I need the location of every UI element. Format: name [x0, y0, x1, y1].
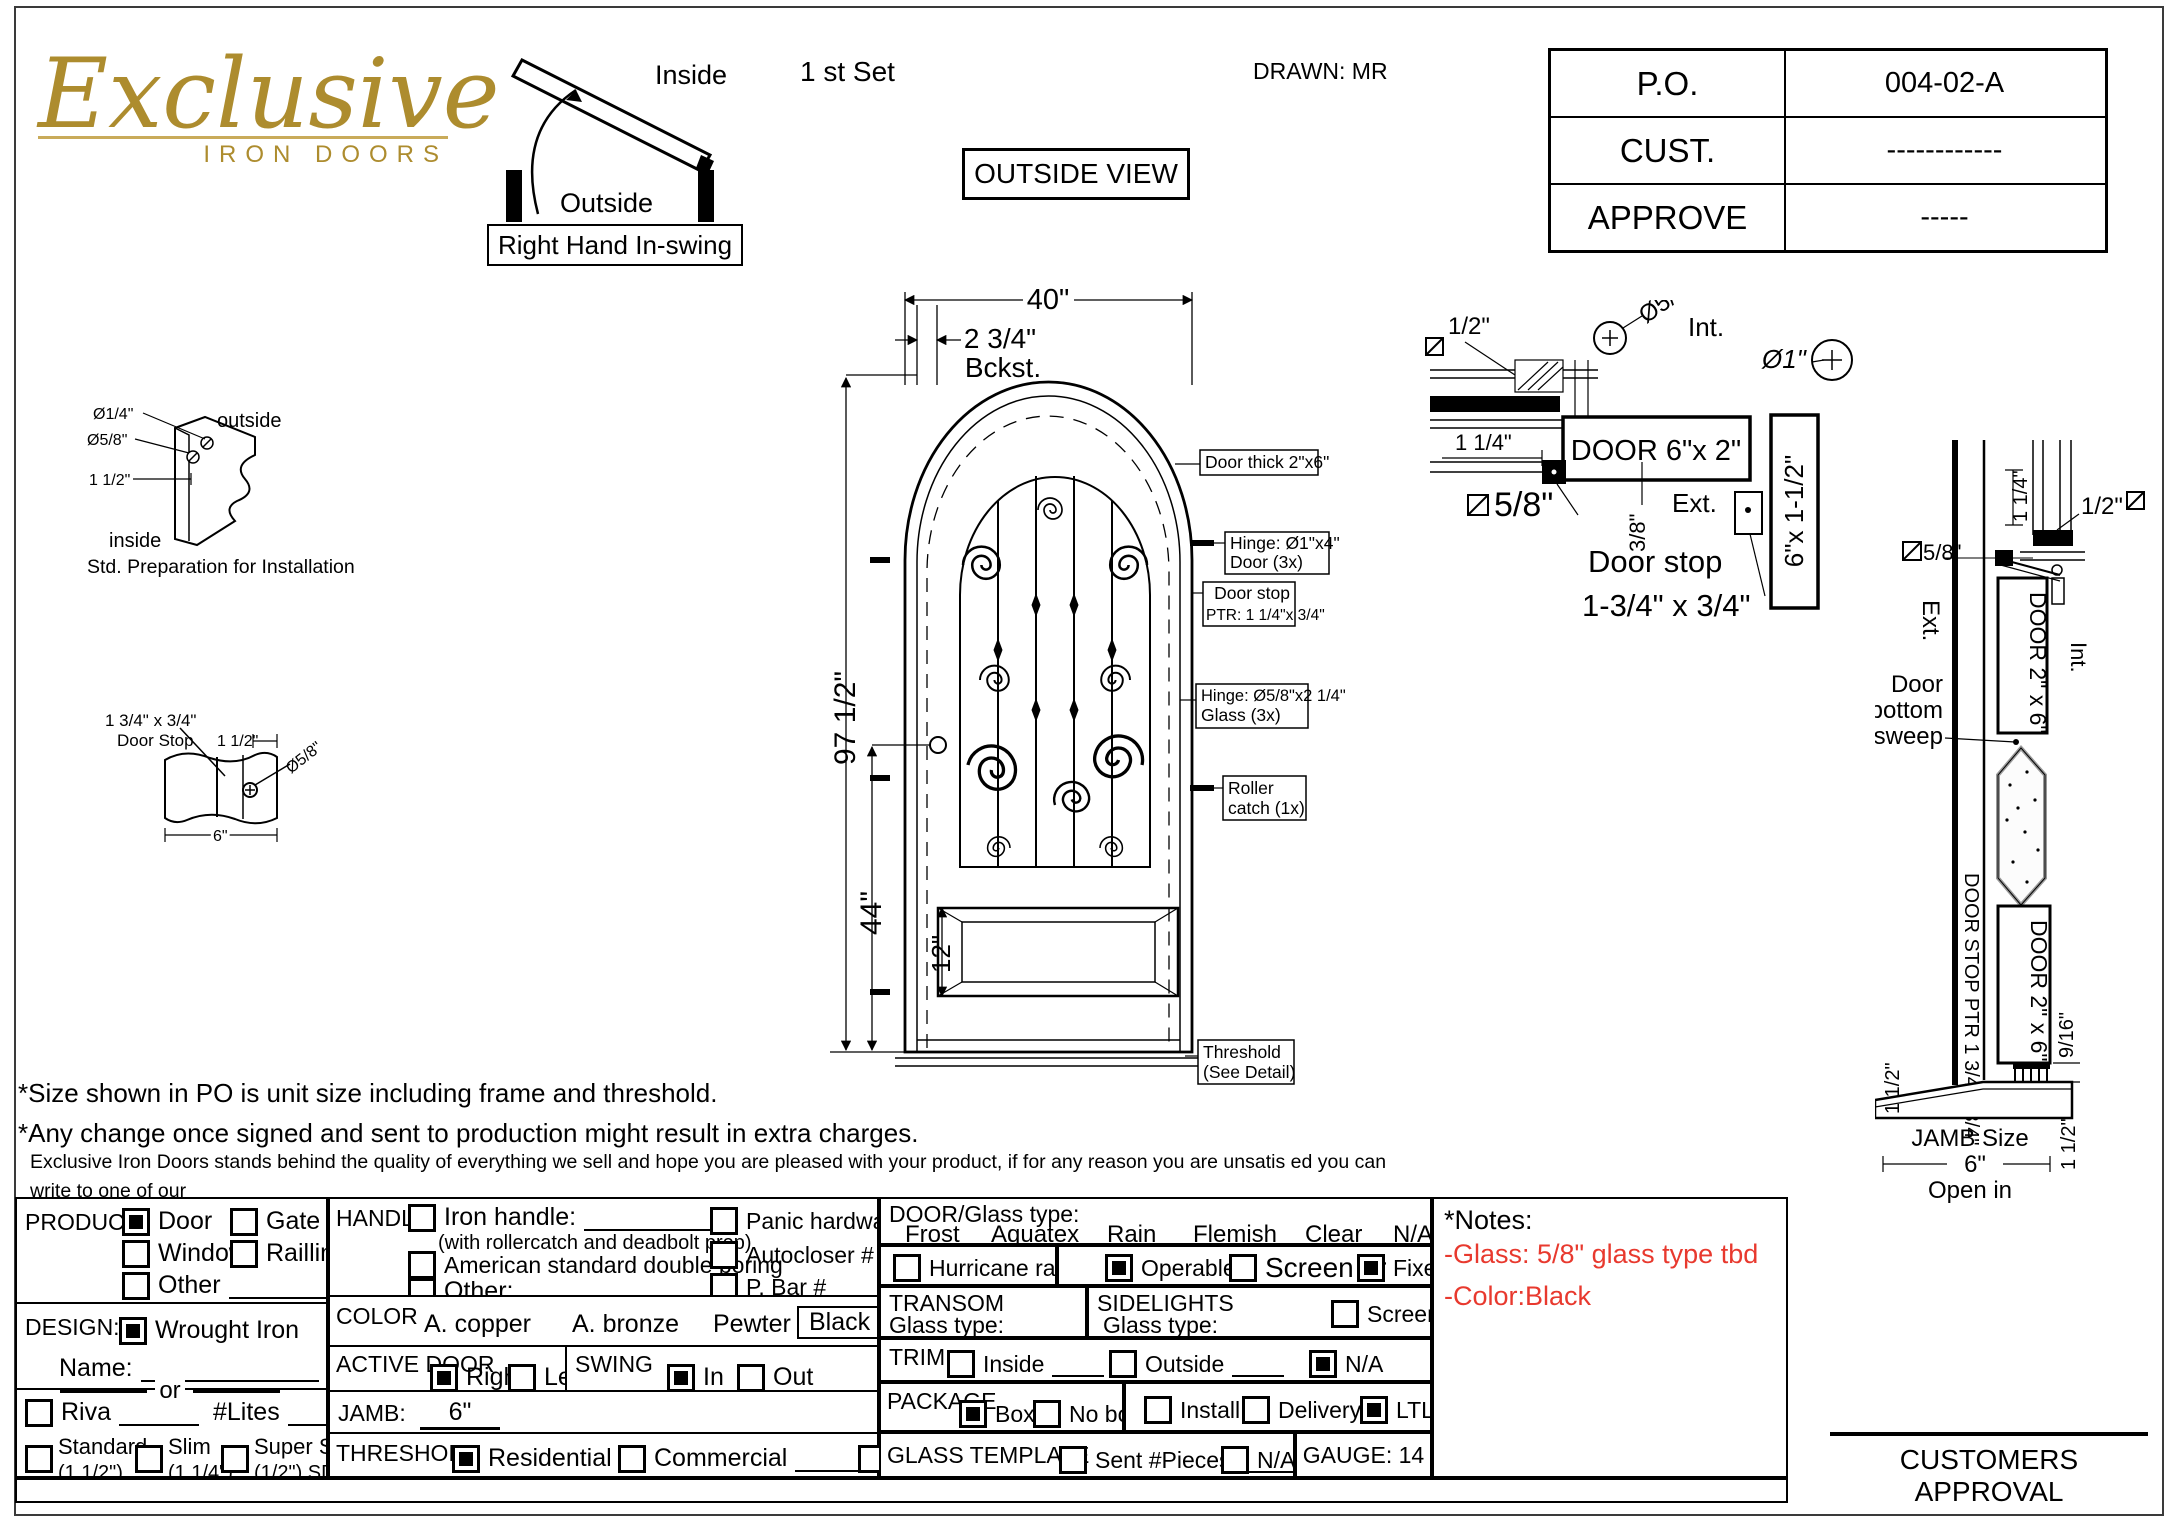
callout-threshold-1: Threshold — [1203, 1042, 1281, 1062]
ext-label: Ext. — [1672, 488, 1717, 518]
door-26-bottom-label: DOOR 2" x 6" — [2026, 920, 2052, 1062]
dia1-label: Ø1" — [1761, 344, 1808, 374]
operable-cell: Operable Screen or Fixed — [1057, 1245, 1432, 1286]
door-26-top-label: DOOR 2" x 6" — [2025, 592, 2051, 734]
delivery-checkbox[interactable] — [1242, 1396, 1270, 1424]
inside-label: Inside — [655, 60, 727, 90]
autocloser-checkbox[interactable] — [710, 1241, 738, 1269]
swing-caption-box: Right Hand In-swing — [487, 224, 743, 266]
door-stop-detail: 1 3/4" x 3/4" Door Stop 1 1/2" Ø5/8" 6" — [85, 700, 345, 860]
threshold-residential-option[interactable]: Residential — [452, 1444, 612, 1473]
dia-quarter-label: Ø1/4" — [93, 406, 133, 423]
trim-label: TRIM — [889, 1344, 945, 1371]
door-elevation: 40" 2 3/4" Bckst. 97 1/2" 44" 12" — [800, 260, 1370, 1100]
callout-roller-2: catch (1x) — [1228, 798, 1305, 818]
sill-half: 1/2" — [2081, 493, 2123, 520]
product-window-checkbox[interactable] — [122, 1240, 150, 1268]
gauge-value: GAUGE: 14 — [1303, 1442, 1424, 1469]
swing-label: SWING — [575, 1351, 653, 1378]
product-door-checkbox[interactable] — [122, 1208, 150, 1236]
active-right-checkbox[interactable] — [430, 1364, 458, 1392]
callout-stop-2: PTR: 1 1/4"x 3/4" — [1206, 607, 1325, 624]
outside-label: Outside — [560, 188, 653, 218]
color-copper-option[interactable]: A. copper — [424, 1310, 531, 1339]
sill-profile — [1875, 1082, 2072, 1118]
dim-backset: 2 3/4" Bckst. — [895, 305, 1041, 385]
swing-in-checkbox[interactable] — [667, 1364, 695, 1392]
std-prep-caption: Std. Preparation for Installation — [87, 556, 355, 579]
package-box-option[interactable]: Box — [959, 1400, 1035, 1428]
sidelights-glass-field[interactable]: Glass type: — [1103, 1312, 1302, 1339]
approve-value[interactable]: ----- — [1786, 185, 2103, 250]
handle-cell: HANDLE Iron handle: (with rollercatch an… — [328, 1197, 879, 1297]
panic-checkbox[interactable] — [710, 1207, 738, 1235]
swing-caption: Right Hand In-swing — [498, 230, 732, 261]
cust-row: CUST. ------------ — [1551, 118, 2105, 185]
product-window-option[interactable]: Window — [122, 1239, 247, 1268]
door-glass-cell: DOOR/Glass type: Frost Aquatex Rain Flem… — [879, 1197, 1432, 1245]
trim-outside-input[interactable] — [1232, 1351, 1284, 1377]
sweep-2: bottom — [1875, 697, 1943, 724]
callout-hinge-glass-2: Glass (3x) — [1201, 705, 1281, 725]
head-black-block — [2033, 530, 2073, 546]
sweep-1: Door — [1891, 671, 1943, 698]
hurricane-checkbox[interactable] — [893, 1254, 921, 1282]
customers-approval-label: CUSTOMERS APPROVAL — [1900, 1444, 2078, 1507]
outside-face-label: outside — [217, 410, 282, 432]
glass-template-na-option[interactable]: N/A — [1221, 1446, 1295, 1474]
order-note-color[interactable]: -Color:Black — [1444, 1281, 1591, 1312]
cust-value[interactable]: ------------ — [1786, 118, 2103, 183]
customers-approval[interactable]: CUSTOMERS APPROVAL — [1830, 1432, 2148, 1508]
active-door-cell: ACTIVE DOOR Right Left — [328, 1345, 567, 1392]
standard-checkbox[interactable] — [25, 1445, 53, 1473]
outside-view-box: OUTSIDE VIEW — [962, 148, 1190, 200]
operable-checkbox[interactable] — [1105, 1254, 1133, 1282]
trim-outside-option[interactable]: Outside — [1109, 1350, 1284, 1378]
dim-40-label: 40" — [1027, 284, 1070, 316]
jamb-size-label: JAMB Size — [1911, 1125, 2028, 1152]
jamb-6x15-label: 6"x 1-1/2" — [1779, 455, 1809, 567]
threshold-commercial-checkbox[interactable] — [618, 1445, 646, 1473]
note-size: *Size shown in PO is unit size including… — [18, 1078, 717, 1109]
dim-12-label: 12" — [926, 935, 956, 973]
product-gate-option[interactable]: Gate — [230, 1207, 320, 1236]
f58-label: 5/8" — [1494, 486, 1553, 524]
sent-pieces-checkbox[interactable] — [1059, 1446, 1087, 1474]
po-table: P.O. 004-02-A CUST. ------------ APPROVE… — [1548, 48, 2108, 253]
dim-975-label: 97 1/2" — [829, 671, 862, 765]
glass-strip — [1998, 748, 2045, 905]
install-option[interactable]: Install — [1144, 1396, 1240, 1424]
backset-word: Bckst. — [965, 352, 1041, 383]
logo: Exclusive IRON DOORS — [38, 46, 448, 169]
threshold-commercial-input[interactable] — [795, 1446, 861, 1472]
design-label: DESIGN: — [25, 1314, 120, 1341]
threshold-cell: THRESHOLD Residential Commercial N/A — [328, 1432, 879, 1478]
product-other-option[interactable]: Other — [122, 1271, 339, 1300]
dim-916-label: 9/16" — [2056, 1012, 2078, 1058]
color-cell: COLOR A. copper A. bronze Pewter Black S… — [328, 1295, 879, 1347]
latch-jamb — [698, 170, 714, 222]
standard-option[interactable]: Standard(1 1/2") — [25, 1434, 147, 1484]
stop-size-label: 1 3/4" x 3/4" — [105, 711, 196, 730]
package-delivery-cell: Install Delivery LTL — [1124, 1382, 1432, 1432]
callout-roller-1: Roller — [1228, 778, 1274, 798]
or-label: or — [155, 1377, 184, 1405]
sill-dim114: 1 1/4" — [2010, 470, 2032, 522]
jamb-plan-outline — [165, 753, 277, 823]
ltl-option[interactable]: LTL — [1360, 1396, 1434, 1424]
wall-black-band — [1430, 396, 1560, 412]
color-pewter-option[interactable]: Pewter — [713, 1310, 791, 1339]
threshold-commercial-option[interactable]: Commercial — [618, 1444, 861, 1473]
stop-dim-label: 1 1/2" — [217, 733, 258, 750]
inside-face-label: inside — [109, 530, 161, 552]
sill-ext: Ext. — [1917, 600, 1944, 641]
approve-row: APPROVE ----- — [1551, 185, 2105, 250]
color-label: COLOR — [336, 1303, 418, 1330]
sidelights-glass-input[interactable] — [1226, 1313, 1302, 1339]
product-gate-checkbox[interactable] — [230, 1208, 258, 1236]
riva-checkbox[interactable] — [25, 1399, 53, 1427]
dim-backset-label: 2 3/4" — [964, 323, 1036, 354]
operable-option[interactable]: Operable — [1105, 1254, 1236, 1282]
callout-thick: Door thick 2"x6" — [1205, 452, 1329, 472]
callout-stop-1: Door stop — [1214, 583, 1290, 603]
order-notes-cell: *Notes: -Glass: 5/8" glass type tbd -Col… — [1432, 1197, 1788, 1478]
outside-view-label: OUTSIDE VIEW — [974, 158, 1178, 190]
one-half-label: 1 1/2" — [89, 472, 130, 489]
sidelights-screen-option[interactable]: Screen — [1331, 1300, 1440, 1328]
super-slim-checkbox[interactable] — [221, 1445, 249, 1473]
swing-in-option[interactable]: In — [667, 1363, 724, 1392]
trim-na-option[interactable]: N/A — [1309, 1350, 1383, 1378]
stop-name-label: Door Stop — [117, 731, 194, 750]
order-notes-title: *Notes: — [1444, 1205, 1533, 1236]
trim-inside-option[interactable]: Inside — [947, 1350, 1104, 1378]
po-label: P.O. — [1551, 51, 1786, 116]
form-footer-band — [15, 1478, 1788, 1503]
head-section-detail: 1/2" Ø5/8" Int. Ø1" DOOR 6"x 2" 6"x 1-1/… — [1420, 300, 1870, 640]
dia-fiveeighth-label: Ø5/8" — [87, 432, 127, 449]
panic-option[interactable]: Panic hardware — [710, 1207, 906, 1235]
swing-out-option[interactable]: Out — [737, 1363, 813, 1392]
package-nobox-checkbox[interactable] — [1033, 1400, 1061, 1428]
american-boring-checkbox[interactable] — [408, 1251, 436, 1279]
sidelights-cell: SIDELIGHTS Glass type: Screen — [1087, 1286, 1432, 1338]
fixed-checkbox[interactable] — [1357, 1254, 1385, 1282]
wall-line — [1952, 440, 1958, 1085]
screen-or-checkbox[interactable] — [1229, 1254, 1257, 1282]
approve-label: APPROVE — [1551, 185, 1786, 250]
product-other-checkbox[interactable] — [122, 1272, 150, 1300]
stop-width-label: 6" — [213, 828, 228, 845]
order-sheet: Exclusive IRON DOORS Inside Outside Righ… — [0, 0, 2176, 1522]
trim-inside-input[interactable] — [1052, 1351, 1104, 1377]
transom-cell: TRANSOM Glass type: — [879, 1286, 1087, 1338]
package-box-checkbox[interactable] — [959, 1400, 987, 1428]
slim-option[interactable]: Slim(1 1/4") — [135, 1434, 233, 1484]
callout-hinge-door-1: Hinge: Ø1"x4" — [1230, 533, 1340, 553]
delivery-option[interactable]: Delivery — [1242, 1396, 1361, 1424]
callout-hinge-glass-1: Hinge: Ø5/8"x2 1/4" — [1201, 687, 1346, 705]
swing-cell: SWING In Out — [565, 1345, 879, 1392]
gauge-cell: GAUGE: 14 — [1295, 1432, 1432, 1478]
product-door-option[interactable]: Door — [122, 1207, 212, 1236]
callout-threshold-2: (See Detail) — [1203, 1062, 1295, 1082]
open-in-label: Open in — [1928, 1177, 2012, 1204]
lites-input[interactable] — [288, 1400, 326, 1426]
color-bronze-option[interactable]: A. bronze — [572, 1310, 679, 1339]
package-cell: PACKAGE Box No box — [879, 1382, 1124, 1432]
hurricane-cell: Hurricane rated — [879, 1245, 1057, 1286]
drawn-label: DRAWN: MR — [1253, 58, 1388, 85]
swing-out-checkbox[interactable] — [737, 1364, 765, 1392]
po-row: P.O. 004-02-A — [1551, 51, 2105, 118]
doorstop-word: Door stop — [1588, 544, 1722, 579]
stop-dia-label: Ø5/8" — [283, 739, 325, 777]
swing-diagram: Inside Outside — [470, 52, 760, 224]
trim-outside-checkbox[interactable] — [1109, 1350, 1137, 1378]
hinge-jamb — [506, 170, 522, 222]
transom-glass-field[interactable]: Glass type: — [889, 1312, 1090, 1339]
dim-112-right: 1 1/2" — [2058, 1118, 2080, 1170]
std-prep-detail: Ø1/4" Ø5/8" 1 1/2" outside inside — [85, 395, 325, 560]
dim-114-label: 1 1/4" — [1455, 430, 1512, 455]
glass-template-na-checkbox[interactable] — [1221, 1446, 1249, 1474]
color-black-option-selected[interactable]: Black — [797, 1306, 882, 1339]
callout-hinge-door-2: Door (3x) — [1230, 552, 1303, 572]
threshold-residential-checkbox[interactable] — [452, 1445, 480, 1473]
corbel-outline — [175, 417, 255, 545]
design-wrought-option[interactable]: Wrought Iron — [119, 1316, 299, 1345]
dim-40: 40" — [905, 284, 1192, 385]
jamb-cell: JAMB: 6" — [328, 1390, 879, 1434]
iron-handle-checkbox[interactable] — [408, 1204, 436, 1232]
trim-cell: TRIM Inside Outside N/A — [879, 1338, 1432, 1382]
design-wrought-checkbox[interactable] — [119, 1317, 147, 1345]
jamb-size-value: 6" — [1964, 1151, 1986, 1178]
door-stop-block — [1735, 492, 1762, 534]
iron-handle-option[interactable]: Iron handle: — [408, 1203, 732, 1232]
doorstop-size: 1-3/4" x 3/4" — [1582, 588, 1751, 623]
sill-section-detail: 1 1/4" 1/2" 5/8" DOOR 2" x 6" Int. Ext. … — [1875, 430, 2175, 1205]
dim-44-label: 44" — [855, 891, 888, 935]
logo-name: Exclusive — [38, 46, 448, 142]
int-label: Int. — [1688, 312, 1724, 342]
half-inch-label: 1/2" — [1448, 313, 1490, 340]
note-change: *Any change once signed and sent to prod… — [18, 1118, 918, 1149]
product-other-input[interactable] — [229, 1273, 339, 1299]
sidelights-screen-checkbox[interactable] — [1331, 1300, 1359, 1328]
glass-template-cell: GLASS TEMPLATE Sent #Pieces N/A — [879, 1432, 1295, 1478]
trim-na-checkbox[interactable] — [1309, 1350, 1337, 1378]
slim-checkbox[interactable] — [135, 1445, 163, 1473]
set-label: 1 st Set — [800, 56, 895, 88]
po-value[interactable]: 004-02-A — [1786, 51, 2103, 116]
product-railling-checkbox[interactable] — [230, 1240, 258, 1268]
sill-int: Int. — [2066, 642, 2091, 673]
jamb-label: JAMB: — [338, 1400, 406, 1427]
door-6x2-label: DOOR 6"x 2" — [1571, 435, 1741, 467]
product-cell: PRODUCT: Door Gate Window Railling Other — [15, 1197, 328, 1304]
transom-glass-input[interactable] — [1012, 1313, 1090, 1339]
ltl-checkbox[interactable] — [1360, 1396, 1388, 1424]
sill-f58: 5/8" — [1923, 540, 1961, 565]
sweep-3: sweep — [1875, 723, 1943, 750]
dim-112-left: 1 1/2" — [1882, 1062, 1904, 1114]
jamb-value[interactable]: 6" — [420, 1398, 500, 1430]
install-checkbox[interactable] — [1144, 1396, 1172, 1424]
cust-label: CUST. — [1551, 118, 1786, 183]
or-divider: or — [60, 1377, 280, 1405]
trim-inside-checkbox[interactable] — [947, 1350, 975, 1378]
sweep-comb — [2013, 1063, 2050, 1082]
active-left-checkbox[interactable] — [508, 1364, 536, 1392]
order-note-glass[interactable]: -Glass: 5/8" glass type tbd — [1444, 1239, 1758, 1270]
